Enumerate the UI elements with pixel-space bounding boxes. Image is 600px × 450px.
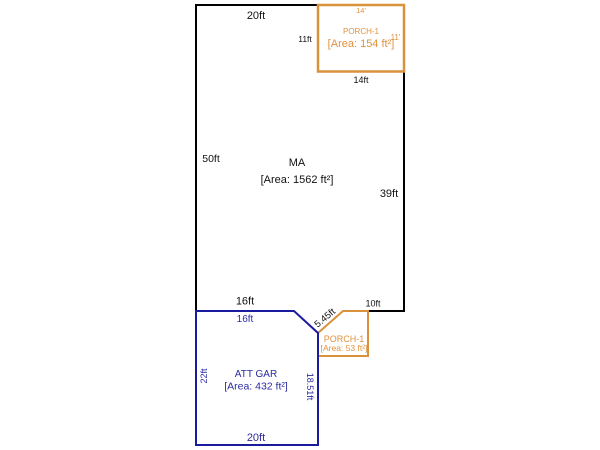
svg-text:20ft: 20ft [247,10,265,22]
svg-text:[Area: 53 ft²]: [Area: 53 ft²] [321,343,368,353]
svg-text:39ft: 39ft [380,188,398,200]
svg-text:PORCH-1: PORCH-1 [343,27,380,36]
svg-text:20ft: 20ft [247,432,265,444]
svg-text:14': 14' [356,6,366,15]
svg-text:MA: MA [289,157,306,169]
svg-text:16ft: 16ft [237,314,254,325]
svg-text:[Area: 154 ft²]: [Area: 154 ft²] [328,38,395,50]
svg-text:18.51ft: 18.51ft [305,373,315,401]
svg-text:ATT GAR: ATT GAR [235,369,277,380]
svg-text:11ft: 11ft [298,34,312,44]
svg-text:50ft: 50ft [202,153,220,165]
svg-text:11': 11' [391,33,401,42]
svg-text:14ft: 14ft [353,75,369,85]
svg-text:[Area: 432 ft²]: [Area: 432 ft²] [224,381,288,393]
svg-text:10ft: 10ft [365,299,381,309]
svg-text:[Area: 1562 ft²]: [Area: 1562 ft²] [261,174,334,186]
svg-text:16ft: 16ft [236,296,254,308]
svg-text:22ft: 22ft [199,368,209,384]
